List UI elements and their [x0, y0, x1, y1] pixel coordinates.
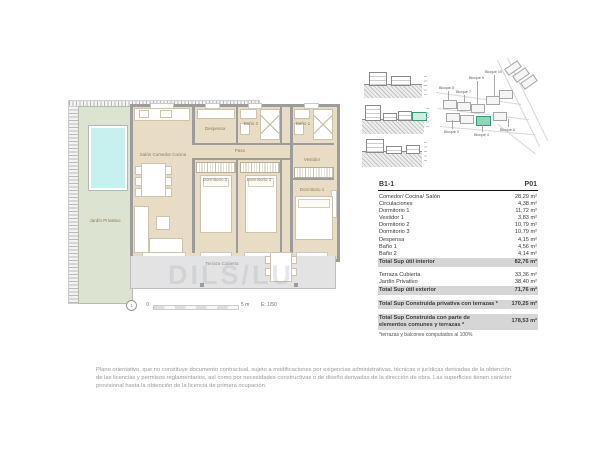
leader-line — [452, 120, 453, 129]
block-label: Bloque 5 — [439, 86, 454, 90]
area-table-header: B1-1 P01 — [378, 181, 538, 191]
section-building — [369, 72, 387, 86]
row-label: Jardín Privativo — [379, 279, 418, 286]
total-label: Total Sup Construida privativa con terra… — [379, 301, 498, 308]
pantry-shelf — [197, 109, 235, 119]
row-value: 10,79 m² — [515, 229, 537, 236]
block-label: Bloque 3 — [444, 130, 459, 134]
row-label: Baño 2 — [379, 251, 397, 258]
row-label: Dormitorio 3 — [379, 229, 409, 236]
total-label: Total Sup útil exterior — [379, 287, 436, 294]
table-row: Dormitorio 210,79 m² — [378, 222, 538, 229]
total-value: 71,76 m² — [515, 287, 537, 294]
scale-end: 5 m — [241, 302, 249, 308]
legal-disclaimer: Plano orientativo, que no constituye doc… — [96, 366, 517, 391]
site-building — [493, 112, 507, 121]
dormitorio3-label: Dormitorio 3 — [247, 177, 272, 182]
chair — [165, 177, 172, 186]
site-building — [471, 104, 485, 113]
block-label: Bloque 7 — [456, 90, 471, 94]
wall — [192, 143, 290, 145]
dormitorio2-label: Dormitorio 2 — [203, 177, 228, 182]
row-label: Baño 1 — [379, 244, 397, 251]
row-value: 4,14 m² — [518, 251, 537, 258]
sink — [240, 109, 257, 119]
section-building — [365, 105, 381, 121]
row-value: 4,38 m² — [518, 201, 537, 208]
section-ground — [364, 84, 422, 98]
bano2-label: Baño 2 — [244, 121, 258, 126]
section-building — [398, 111, 412, 121]
table-row: Dormitorio 111,72 m² — [378, 208, 538, 215]
living-label: Salón Comedor Cocina — [140, 152, 187, 157]
table-row: Vestidor 13,83 m² — [378, 215, 538, 222]
kitchen-hob — [160, 110, 172, 118]
chair — [165, 166, 172, 175]
row-label: Dormitorio 2 — [379, 222, 409, 229]
wardrobe — [240, 162, 280, 173]
wall — [236, 107, 238, 145]
vestidor-label: Vestidor — [304, 157, 320, 162]
bed — [295, 196, 333, 240]
despensa-label: Despensa — [205, 126, 225, 131]
total-value: 82,76 m² — [515, 259, 537, 266]
section-building — [386, 146, 402, 154]
block-label: Bloque 9 — [469, 76, 484, 80]
scale-bar — [153, 305, 239, 310]
table-row: Baño 24,14 m² — [378, 251, 538, 258]
chair — [135, 177, 142, 186]
row-value: 4,56 m² — [518, 244, 537, 251]
row-label: Despensa — [379, 237, 404, 244]
row-value: 38,40 m² — [515, 279, 537, 286]
table-row: Dormitorio 310,79 m² — [378, 229, 538, 236]
leader-line — [482, 124, 483, 132]
site-building — [457, 102, 471, 111]
wardrobe — [196, 162, 236, 173]
shower — [313, 109, 333, 140]
pillow — [298, 199, 330, 208]
block-label: Bloque 10 — [485, 70, 502, 74]
kitchen-sink — [139, 110, 149, 118]
bano1-label: Baño 1 — [296, 121, 310, 126]
scale-ratio: E: 1/50 — [261, 302, 277, 308]
scale-zero: 0 — [146, 302, 149, 308]
north-mark: 1 — [126, 300, 137, 311]
pool — [89, 126, 127, 190]
wall — [192, 158, 195, 253]
chair — [135, 166, 142, 175]
wall — [192, 158, 290, 160]
site-building — [446, 113, 460, 122]
site-building — [443, 100, 457, 109]
leader-line — [448, 91, 449, 100]
terrace-column — [294, 283, 298, 287]
wall — [280, 107, 282, 145]
wall — [236, 160, 238, 253]
bed — [200, 175, 232, 233]
wall — [280, 160, 282, 253]
table-row: Comedor/ Cocina/ Salón28,29 m² — [378, 194, 538, 201]
section-ground — [362, 119, 424, 134]
total-value: 178,53 m² — [512, 318, 538, 325]
leader-line — [477, 81, 478, 104]
level-ticks — [426, 108, 429, 130]
exterior-total-row: Total Sup útil exterior71,76 m² — [378, 286, 538, 294]
wardrobe — [294, 167, 334, 178]
total-value: 170,25 m² — [512, 301, 538, 308]
coffee-table — [156, 216, 170, 230]
row-label: Comedor/ Cocina/ Salón — [379, 194, 440, 201]
leader-line — [464, 95, 465, 102]
leader-line — [508, 119, 509, 127]
paso-label: Paso — [235, 148, 245, 153]
row-label: Terraza Cubierta — [379, 272, 420, 279]
row-value: 28,29 m² — [515, 194, 537, 201]
built-common-total-row: Total Sup Construida con parte de elemen… — [378, 314, 538, 330]
section-building — [406, 145, 420, 154]
wall — [292, 143, 334, 145]
garden-label: Jardín Privativo — [89, 218, 120, 223]
block-label: Bloque 6 — [500, 128, 515, 132]
section-building-highlighted — [412, 112, 427, 121]
interior-total-row: Total Sup útil interior82,76 m² — [378, 258, 538, 266]
site-building-highlighted — [476, 116, 491, 126]
section-building — [383, 113, 397, 121]
row-value: 33,36 m² — [515, 272, 537, 279]
wall — [292, 178, 334, 180]
built-private-total-row: Total Sup Construida privativa con terra… — [378, 300, 538, 308]
bed — [245, 175, 277, 233]
block-label: Bloque 4 — [474, 133, 489, 137]
total-label: Total Sup útil interior — [379, 259, 435, 266]
level-ticks — [424, 76, 427, 96]
wall — [192, 107, 195, 143]
section-building — [366, 139, 384, 153]
row-value: 11,72 m² — [515, 208, 537, 215]
table-row: Terraza Cubierta33,36 m² — [378, 272, 538, 279]
section-building — [391, 76, 411, 86]
chair — [165, 188, 172, 197]
level-ticks — [424, 142, 427, 162]
table-footnote: *terrazas y balcones computados al 100% — [378, 330, 538, 338]
shower — [260, 109, 280, 140]
floor-code: P01 — [525, 181, 537, 188]
site-building — [460, 115, 474, 124]
table-row: Circulaciones4,38 m² — [378, 201, 538, 208]
dining-table — [141, 163, 166, 197]
row-value: 4,15 m² — [518, 237, 537, 244]
sofa — [134, 206, 149, 253]
dormitorio1-label: Dormitorio 1 — [300, 187, 325, 192]
sink — [294, 109, 310, 119]
sofa — [149, 238, 183, 253]
row-value: 10,79 m² — [515, 222, 537, 229]
row-label: Vestidor 1 — [379, 215, 404, 222]
row-label: Dormitorio 1 — [379, 208, 409, 215]
table-row: Baño 14,56 m² — [378, 244, 538, 251]
plan-sheet: Jardín Privativo — [0, 0, 600, 450]
table-row: Despensa4,15 m² — [378, 237, 538, 244]
site-building — [486, 96, 500, 105]
chair — [135, 188, 142, 197]
leader-line — [494, 75, 495, 96]
watermark: DILS/LU — [168, 260, 294, 291]
unit-code: B1-1 — [379, 181, 394, 188]
table-row: Jardín Privativo38,40 m² — [378, 279, 538, 286]
total-label: Total Sup Construida con parte de elemen… — [379, 315, 497, 330]
row-label: Circulaciones — [379, 201, 413, 208]
site-building — [499, 90, 513, 99]
area-table: B1-1 P01 Comedor/ Cocina/ Salón28,29 m² … — [378, 181, 538, 338]
row-value: 3,83 m² — [518, 215, 537, 222]
